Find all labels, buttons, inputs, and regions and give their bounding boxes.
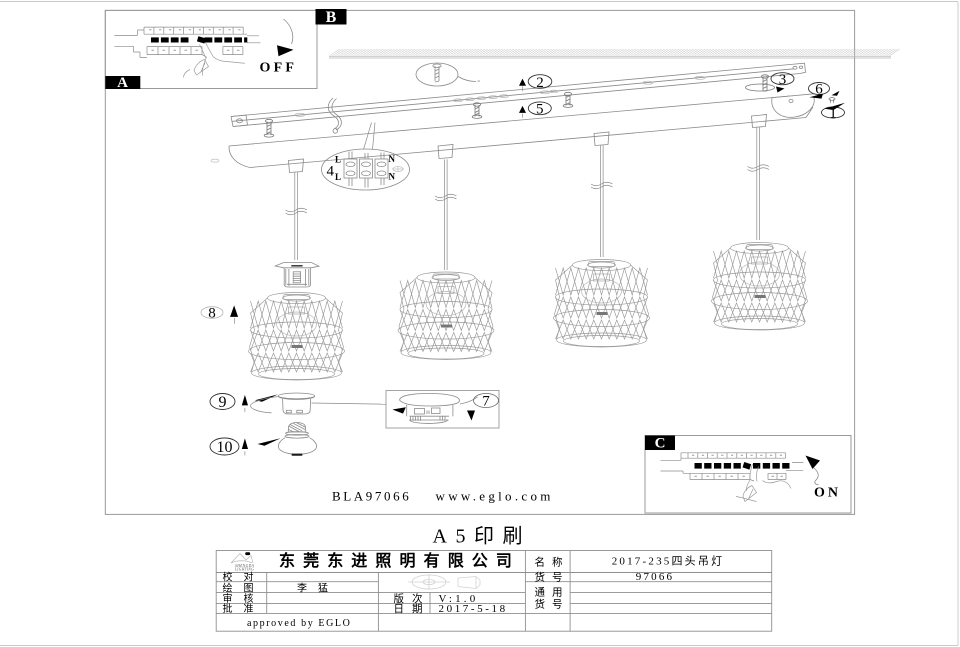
- svg-text:货号: 货号: [535, 598, 570, 611]
- svg-text:2017-5-18: 2017-5-18: [439, 603, 508, 615]
- svg-text:校对: 校对: [223, 571, 265, 584]
- svg-text:2: 2: [536, 75, 544, 91]
- svg-text:ON: ON: [814, 486, 841, 501]
- svg-text:货号: 货号: [535, 571, 570, 584]
- svg-text:10: 10: [217, 439, 233, 456]
- svg-text:97066: 97066: [636, 571, 675, 583]
- svg-text:B: B: [326, 9, 337, 26]
- svg-text:BLA97066: BLA97066: [332, 489, 411, 504]
- svg-text:LIGHTING: LIGHTING: [234, 567, 254, 571]
- svg-text:8: 8: [208, 306, 216, 322]
- svg-text:9: 9: [219, 394, 227, 411]
- svg-text:OFF: OFF: [260, 61, 298, 76]
- svg-text:绘图: 绘图: [223, 581, 265, 594]
- svg-text:版次: 版次: [394, 592, 431, 605]
- svg-text:李猛: 李猛: [297, 581, 339, 594]
- svg-text:A: A: [117, 75, 128, 91]
- svg-text:批准: 批准: [223, 602, 265, 615]
- svg-text:C: C: [655, 436, 666, 452]
- svg-text:东莞东进照明有限公司: 东莞东进照明有限公司: [279, 551, 520, 570]
- svg-text:名称: 名称: [535, 556, 570, 569]
- svg-text:N: N: [389, 154, 396, 164]
- svg-text:5: 5: [536, 102, 544, 118]
- svg-text:2017-235四头吊灯: 2017-235四头吊灯: [612, 555, 725, 568]
- svg-text:4: 4: [327, 164, 335, 180]
- svg-text:A5印刷: A5印刷: [433, 525, 531, 548]
- svg-text:3: 3: [779, 72, 787, 88]
- svg-text:approved by EGLO: approved by EGLO: [247, 618, 351, 629]
- svg-text:N: N: [389, 172, 396, 182]
- svg-text:L: L: [335, 155, 341, 165]
- svg-text:审核: 审核: [223, 592, 265, 605]
- svg-text:通用: 通用: [535, 587, 570, 599]
- svg-text:www.eglo.com: www.eglo.com: [436, 489, 554, 504]
- svg-text:L: L: [335, 172, 341, 182]
- svg-text:日期: 日期: [394, 603, 431, 615]
- svg-text:7: 7: [482, 394, 490, 410]
